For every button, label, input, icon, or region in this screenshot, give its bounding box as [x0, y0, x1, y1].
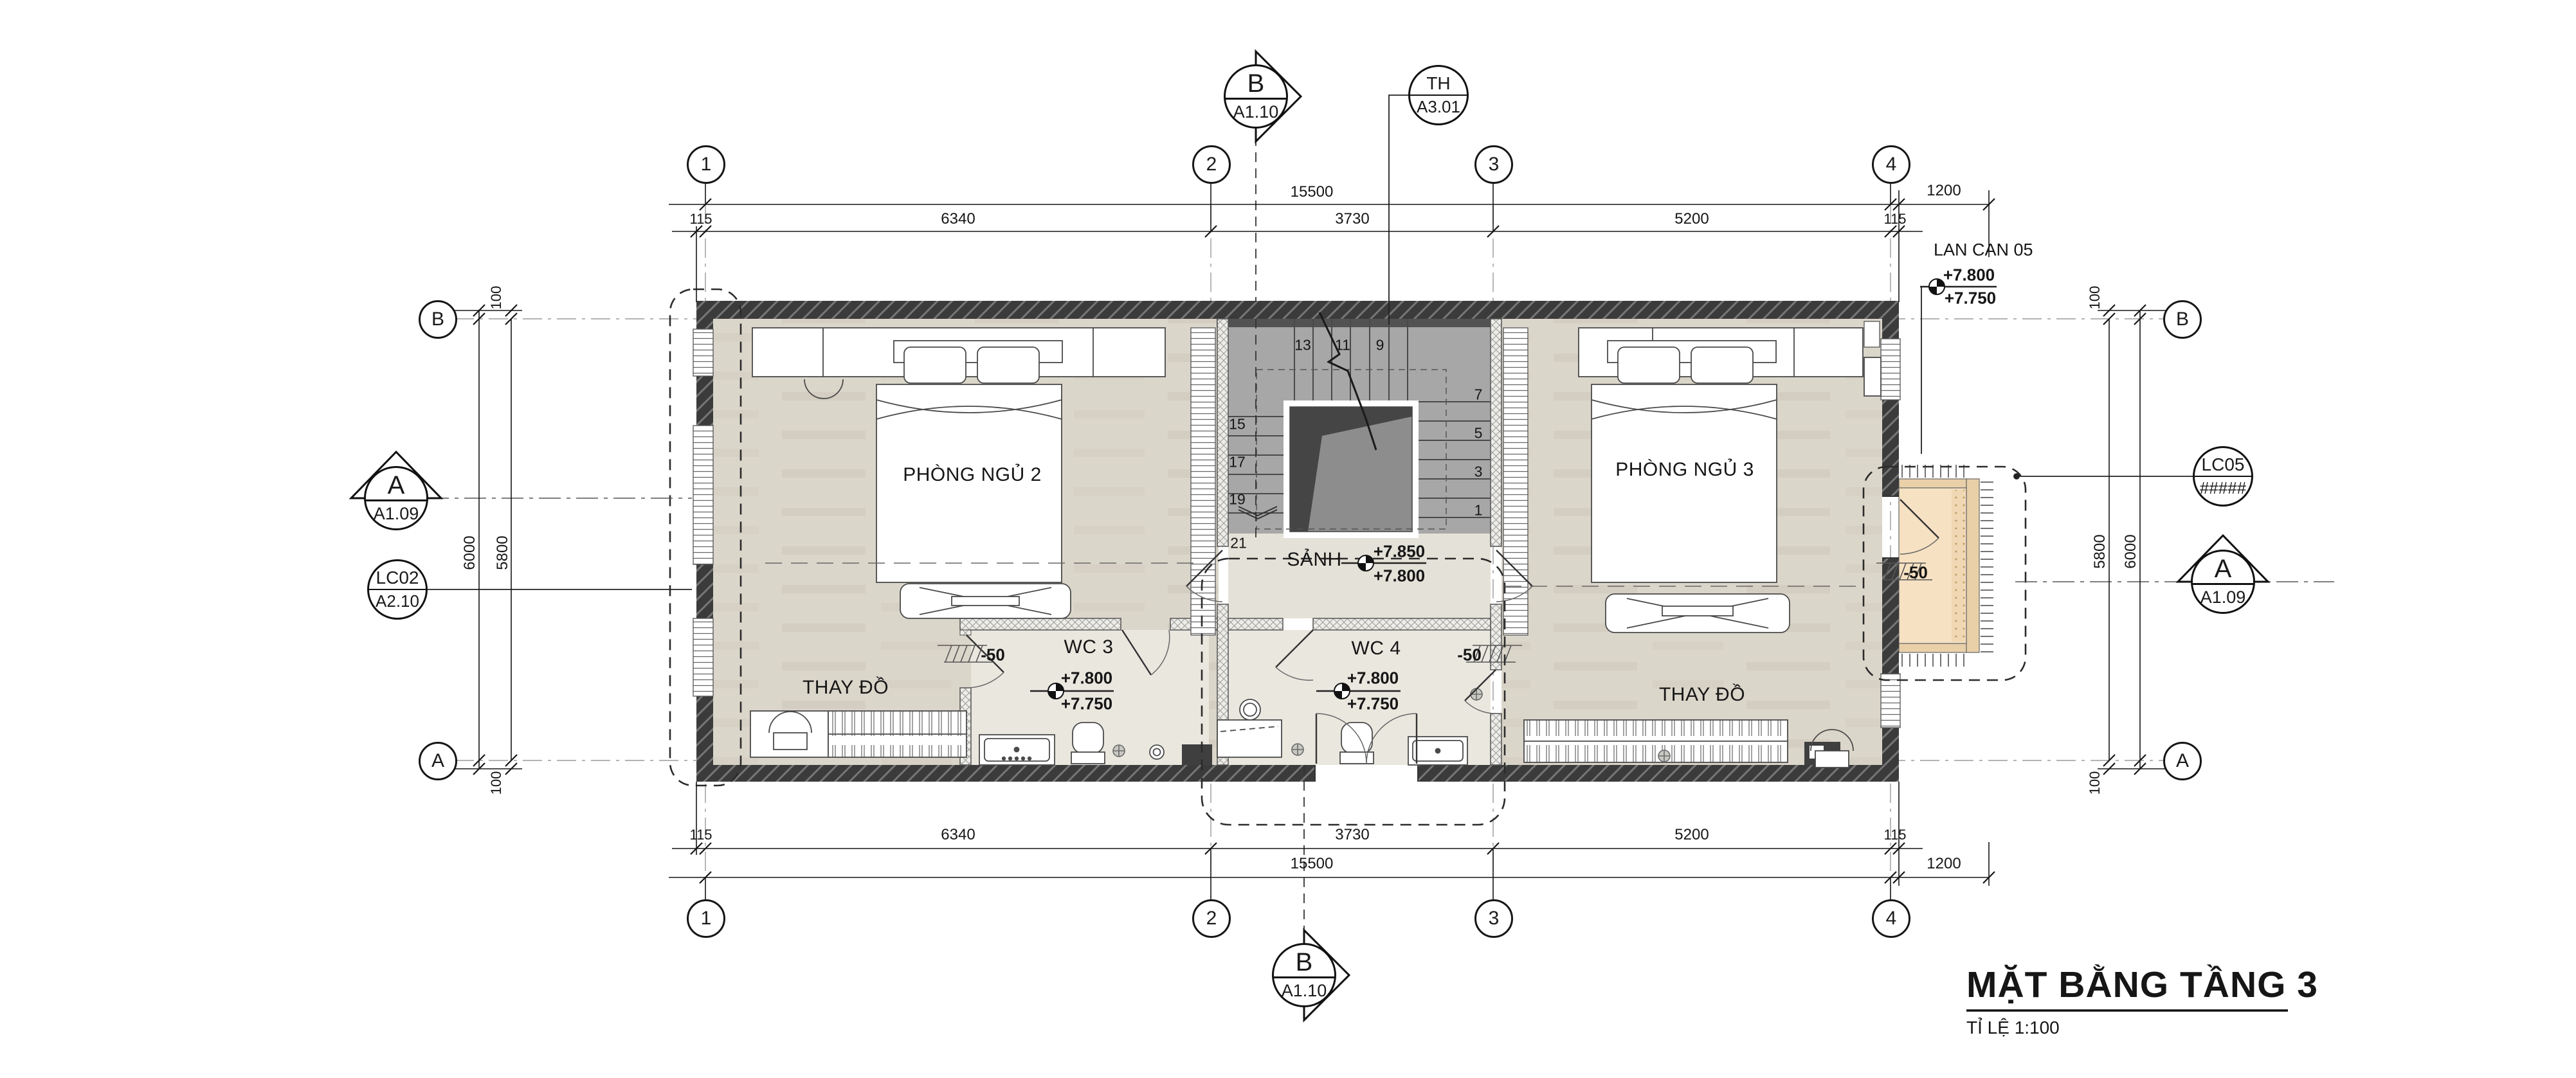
grid-label: B	[431, 309, 444, 330]
grid-bubble-3-top: 3	[1474, 145, 1513, 184]
section-marker-b-bottom: B A1.10	[1272, 943, 1336, 1007]
grid-bubble-1-top: 1	[687, 145, 725, 184]
elevation-marker-icon	[1048, 683, 1064, 699]
grid-label: 1	[701, 908, 712, 930]
stair-num: 9	[1376, 337, 1384, 354]
stair-num: 11	[1335, 337, 1350, 354]
dim-1200-bottom: 1200	[1927, 855, 1961, 873]
callout-sheet: A2.10	[376, 590, 419, 612]
grid-label: A	[431, 750, 444, 772]
grid-bubble-2-top: 2	[1192, 145, 1231, 184]
dim-5200-bottom: 5200	[1674, 826, 1709, 844]
dim-100-left-bottom: 100	[488, 771, 505, 795]
section-marker-b-top: B A1.10	[1224, 64, 1288, 129]
grid-label: 1	[701, 154, 712, 175]
dim-5200-top: 5200	[1674, 210, 1709, 228]
room-label-hall: SẢNH	[1287, 549, 1341, 571]
section-letter: B	[1274, 948, 1334, 978]
room-label-dressing-left: THAY ĐỒ	[803, 677, 889, 699]
grid-label: 2	[1206, 154, 1217, 175]
stair-num: 1	[1474, 502, 1483, 519]
stair-num: 5	[1474, 425, 1483, 442]
callout-lc05: LC05 #####	[2193, 446, 2253, 507]
dim-6340-top: 6340	[941, 210, 975, 228]
grid-label: 3	[1489, 908, 1500, 930]
dim-3730-top: 3730	[1335, 210, 1369, 228]
dim-3730-bottom: 3730	[1335, 826, 1369, 844]
callout-sheet: #####	[2200, 477, 2246, 499]
grid-bubble-B-right: B	[2163, 300, 2202, 339]
dim-115-top-right: 115	[1883, 211, 1906, 228]
dim-115-bottom-left: 115	[689, 827, 712, 843]
section-letter: A	[366, 471, 426, 501]
dim-6340-bottom: 6340	[941, 826, 975, 844]
grid-bubble-2-bottom: 2	[1192, 899, 1231, 938]
dim-1200-top: 1200	[1927, 182, 1961, 200]
stair-num: 15	[1229, 416, 1246, 433]
stair-num: 13	[1294, 337, 1311, 354]
dim-100-left-top: 100	[488, 286, 505, 310]
elevation-marker-icon	[1928, 278, 1945, 295]
room-label-wc3: WC 3	[1064, 636, 1114, 658]
section-marker-a-right: A A1.09	[2191, 550, 2255, 614]
plan-linework	[0, 0, 2576, 1078]
dim-6000-left: 6000	[461, 535, 479, 570]
section-marker-a-left: A A1.09	[364, 466, 428, 530]
dim-115-top-left: 115	[689, 211, 712, 228]
callout-label: TH	[1410, 73, 1467, 96]
wc4-level-lower: +7.750	[1347, 694, 1399, 714]
callout-label: LC05	[2195, 454, 2251, 477]
dim-15500-bottom: 15500	[1291, 855, 1334, 873]
dim-5800-right: 5800	[2091, 534, 2109, 568]
floor-plan-canvas: 1 2 3 4 1 2 3 4 B A B A B A1.10 B A1.10 …	[0, 0, 2576, 1078]
section-letter: B	[1226, 69, 1286, 100]
grid-label: 4	[1886, 908, 1897, 930]
grid-bubble-3-bottom: 3	[1474, 899, 1513, 938]
grid-label: A	[2176, 750, 2189, 772]
railing-level-upper: +7.800	[1943, 265, 1995, 285]
grid-label: 3	[1489, 154, 1500, 175]
stair-num: 7	[1474, 386, 1483, 404]
railing-level-lower: +7.750	[1945, 289, 1996, 309]
dim-5800-left: 5800	[494, 535, 512, 570]
section-sheet: A1.09	[2200, 585, 2246, 609]
wc3-level-upper: +7.800	[1061, 669, 1112, 688]
drawing-scale: TỈ LỆ 1:100	[1966, 1018, 2060, 1038]
grid-label: 4	[1886, 154, 1897, 175]
hall-level-lower: +7.800	[1374, 566, 1425, 586]
stair-num: 21	[1230, 535, 1247, 552]
dim-100-right-top: 100	[2087, 286, 2103, 310]
grid-bubble-B-left: B	[419, 300, 457, 339]
section-sheet: A1.10	[1233, 100, 1279, 124]
room-label-wc4: WC 4	[1352, 638, 1401, 660]
room-label-dressing-right: THAY ĐỒ	[1659, 684, 1745, 706]
grid-bubble-A-right: A	[2163, 742, 2202, 780]
dim-15500-top: 15500	[1291, 183, 1334, 201]
elevation-marker-icon	[1334, 683, 1350, 699]
threshold-level-balcony: -50	[1903, 563, 1928, 583]
railing-note-label: LAN CAN 05	[1934, 240, 2033, 260]
stair-num: 19	[1229, 491, 1246, 508]
threshold-level-wc3: -50	[981, 645, 1005, 665]
wc4-level-upper: +7.800	[1347, 669, 1399, 688]
section-sheet: A1.10	[1282, 978, 1327, 1003]
grid-bubble-4-bottom: 4	[1872, 899, 1910, 938]
dim-6000-right: 6000	[2122, 534, 2140, 568]
stair-num: 17	[1229, 454, 1246, 471]
stair-callout: TH A3.01	[1408, 65, 1469, 125]
wc3-level-lower: +7.750	[1061, 694, 1112, 714]
grid-label: 2	[1206, 908, 1217, 930]
room-label-bedroom2: PHÒNG NGỦ 2	[903, 464, 1042, 486]
section-sheet: A1.09	[374, 501, 419, 526]
grid-label: B	[2176, 309, 2189, 330]
room-label-bedroom3: PHÒNG NGỦ 3	[1615, 459, 1754, 481]
callout-label: LC02	[369, 567, 426, 590]
section-letter: A	[2193, 555, 2253, 585]
elevation-marker-icon	[1357, 555, 1374, 571]
grid-bubble-4-top: 4	[1872, 145, 1910, 184]
callout-lc02: LC02 A2.10	[367, 559, 428, 620]
drawing-title: MẶT BẰNG TẦNG 3	[1966, 964, 2318, 1006]
stair-num: 3	[1474, 463, 1483, 481]
callout-sheet: A3.01	[1417, 96, 1460, 118]
hall-level-upper: +7.850	[1374, 542, 1425, 562]
grid-bubble-A-left: A	[419, 742, 457, 780]
dim-100-right-bottom: 100	[2087, 771, 2103, 795]
grid-bubble-1-bottom: 1	[687, 899, 725, 938]
dim-115-bottom-right: 115	[1883, 827, 1906, 843]
threshold-level-wc4: -50	[1457, 645, 1482, 665]
